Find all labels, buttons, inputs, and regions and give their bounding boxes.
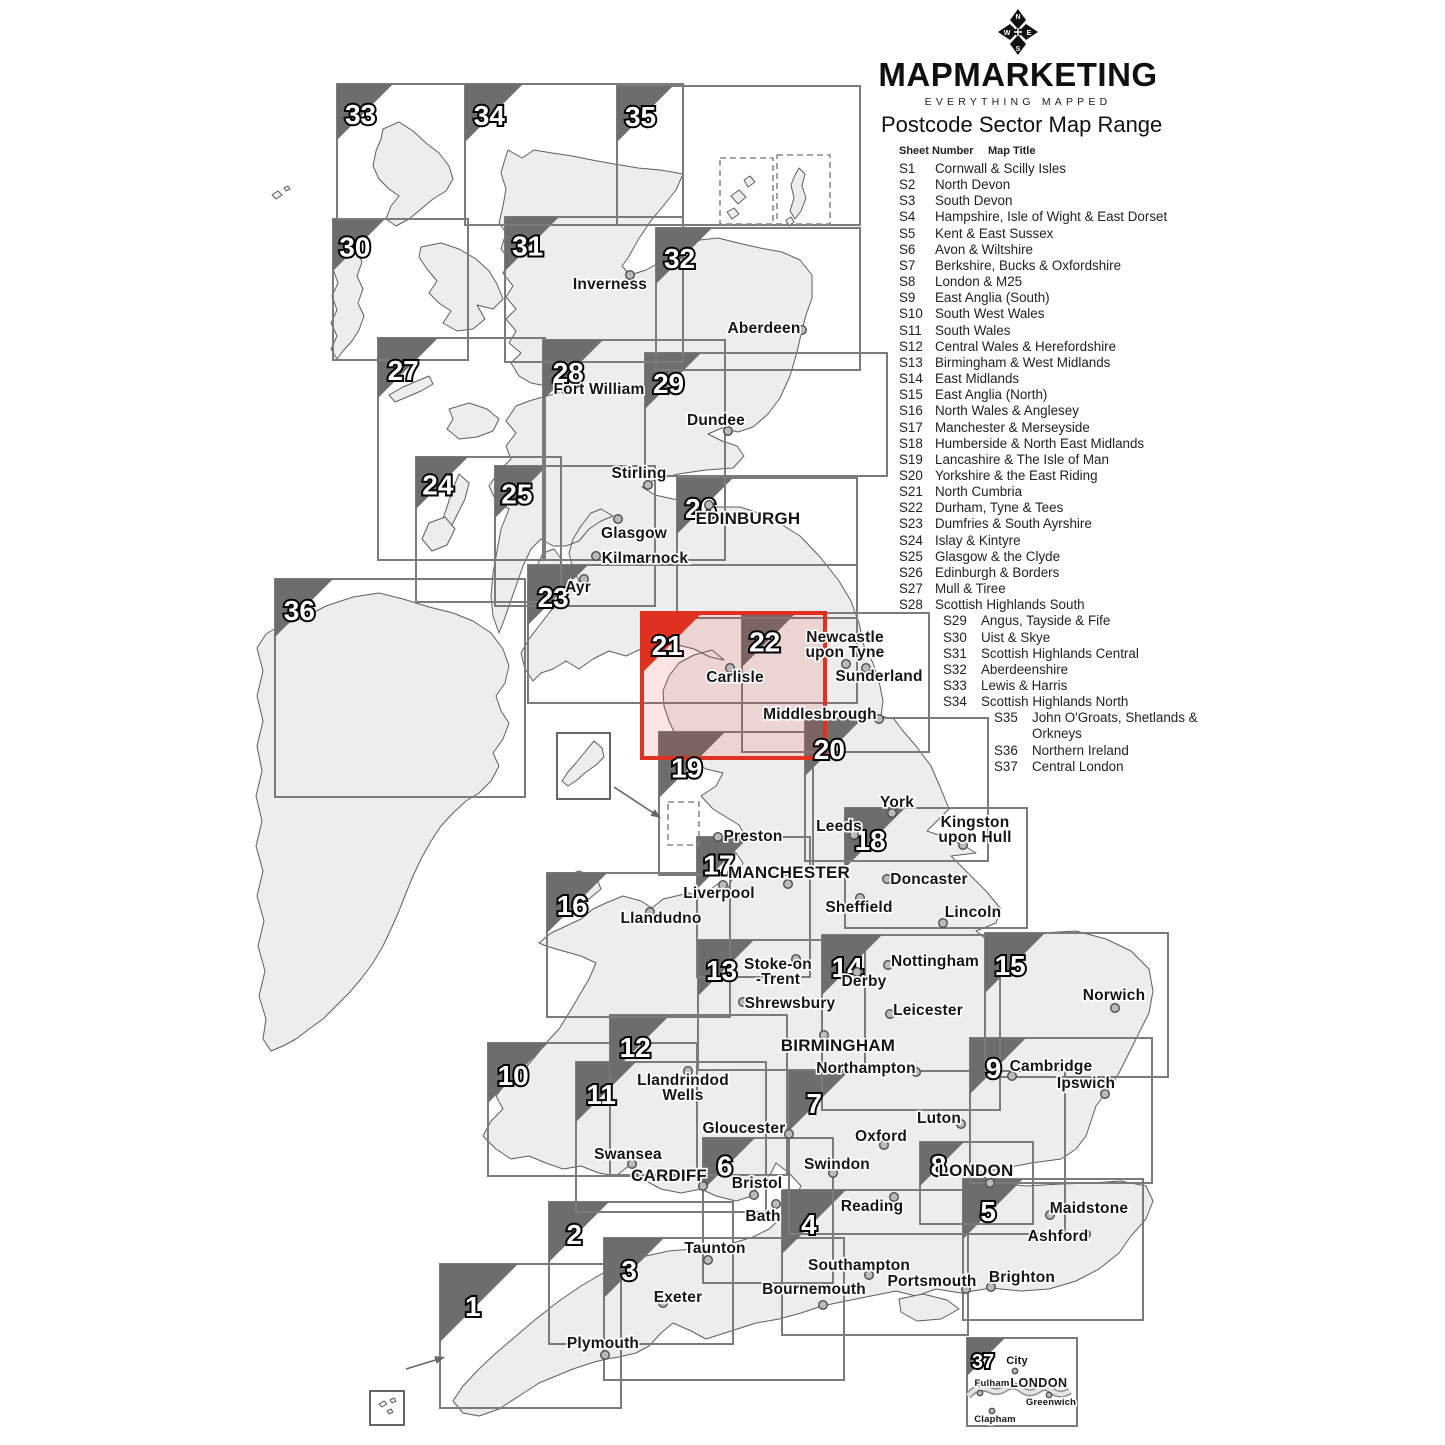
page-title: Postcode Sector Map Range bbox=[881, 112, 1162, 138]
legend-sheet-number: S17 bbox=[899, 420, 935, 436]
legend-map-title: Avon & Wiltshire bbox=[935, 242, 1204, 258]
legend-sheet-number: S36 bbox=[994, 743, 1032, 759]
sheet-number-1: 1 bbox=[465, 1291, 481, 1322]
legend-sheet-number: S3 bbox=[899, 193, 935, 209]
legend-sheet-number: S13 bbox=[899, 355, 935, 371]
sheet-number-31: 31 bbox=[512, 231, 543, 262]
city-label: Fort William bbox=[554, 381, 645, 398]
city-label: EDINBURGH bbox=[696, 509, 801, 528]
city-label: LONDON bbox=[1010, 1376, 1067, 1390]
city-label: Glasgow bbox=[601, 525, 668, 542]
sheet-number-25: 25 bbox=[501, 479, 532, 510]
city-label: York bbox=[880, 794, 914, 811]
legend-map-title: North Cumbria bbox=[935, 484, 1204, 500]
city-leicester: Leicester bbox=[886, 1002, 963, 1019]
legend-map-title: Uist & Skye bbox=[981, 630, 1204, 646]
legend-map-title: Northern Ireland bbox=[1032, 743, 1204, 759]
legend-item-s32: S32Aberdeenshire bbox=[943, 662, 1204, 678]
city-gloucester: Gloucester bbox=[703, 1120, 794, 1138]
city-label: Swansea bbox=[594, 1146, 662, 1163]
sheet-number-2: 2 bbox=[566, 1219, 582, 1250]
legend-item-s25: S25Glasgow & the Clyde bbox=[899, 549, 1204, 565]
city-doncaster: Doncaster bbox=[883, 871, 968, 888]
city-exeter: Exeter bbox=[654, 1289, 703, 1307]
city-dot bbox=[1012, 1368, 1017, 1373]
isle-of-wight bbox=[899, 1294, 959, 1321]
legend-map-title: Lewis & Harris bbox=[981, 678, 1204, 694]
legend-sheet-number: S22 bbox=[899, 500, 935, 516]
legend-map-title: Kent & East Sussex bbox=[935, 226, 1204, 242]
sheet-number-33: 33 bbox=[345, 99, 376, 130]
city-london: LONDON bbox=[1010, 1376, 1067, 1390]
legend-map-title: Central Wales & Herefordshire bbox=[935, 339, 1204, 355]
legend-map-title: Berkshire, Bucks & Oxfordshire bbox=[935, 258, 1204, 274]
legend-map-title: South Wales bbox=[935, 323, 1204, 339]
city-dot bbox=[989, 1408, 994, 1413]
legend-sheet-number: S10 bbox=[899, 306, 935, 322]
city-label: Gloucester bbox=[703, 1120, 786, 1137]
sheet-number-7: 7 bbox=[806, 1088, 822, 1119]
legend-item-s23: S23Dumfries & South Ayrshire bbox=[899, 516, 1204, 532]
city-label: Nottingham bbox=[891, 953, 979, 970]
sheet-number-4: 4 bbox=[801, 1209, 817, 1240]
isle-of-man-dashed-box bbox=[668, 802, 699, 845]
legend-sheet-number: S18 bbox=[899, 436, 935, 452]
legend-map-title: Glasgow & the Clyde bbox=[935, 549, 1204, 565]
legend-map-title: Birmingham & West Midlands bbox=[935, 355, 1204, 371]
brand-block: N E S W MAPMARKETING EVERYTHING MAPPED bbox=[878, 8, 1158, 108]
city-label: upon Tyne bbox=[805, 644, 884, 661]
legend-sheet-number: S21 bbox=[899, 484, 935, 500]
sheet-number-34: 34 bbox=[474, 100, 506, 131]
legend-map-title: Scottish Highlands Central bbox=[981, 646, 1204, 662]
city-fort-william: Fort William bbox=[554, 381, 645, 398]
legend-item-s29: S29Angus, Tayside & Fife bbox=[943, 613, 1204, 629]
legend-item-s13: S13Birmingham & West Midlands bbox=[899, 355, 1204, 371]
city-label: Maidstone bbox=[1050, 1200, 1129, 1217]
legend-item-s5: S5Kent & East Sussex bbox=[899, 226, 1204, 242]
city-kilmarnock: Kilmarnock bbox=[592, 550, 689, 567]
legend-sheet-number: S1 bbox=[899, 161, 935, 177]
legend-map-title: Scottish Highlands North bbox=[981, 694, 1204, 710]
legend-sheet-number: S16 bbox=[899, 403, 935, 419]
legend-item-s16: S16North Wales & Anglesey bbox=[899, 403, 1204, 419]
legend-map-title: North Devon bbox=[935, 177, 1204, 193]
legend-sheet-number: S31 bbox=[943, 646, 981, 662]
legend-map-title: Yorkshire & the East Riding bbox=[935, 468, 1204, 484]
city-dot bbox=[977, 1390, 982, 1395]
legend-map-title: Manchester & Merseyside bbox=[935, 420, 1204, 436]
legend-sheet-number: S11 bbox=[899, 323, 935, 339]
city-label: Southampton bbox=[808, 1257, 910, 1274]
city-label: Middlesbrough bbox=[763, 706, 877, 723]
legend-sheet-number: S32 bbox=[943, 662, 981, 678]
city-city: City bbox=[1006, 1355, 1028, 1374]
legend-item-s14: S14East Midlands bbox=[899, 371, 1204, 387]
city-label: Dundee bbox=[687, 412, 745, 429]
legend-item-s17: S17Manchester & Merseyside bbox=[899, 420, 1204, 436]
legend-item-s34: S34Scottish Highlands North bbox=[943, 694, 1204, 710]
city-label: Leicester bbox=[893, 1002, 963, 1019]
compass-e: E bbox=[1027, 30, 1032, 37]
st-kilda-islets bbox=[272, 186, 290, 199]
city-label: Swindon bbox=[804, 1156, 870, 1173]
sheet-number-30: 30 bbox=[339, 232, 370, 263]
sheet-number-16: 16 bbox=[557, 890, 588, 921]
city-llandudno: Llandudno bbox=[620, 908, 701, 927]
isle-of-man-arrow bbox=[614, 787, 658, 816]
city-dot bbox=[785, 1130, 794, 1139]
legend-item-s2: S2North Devon bbox=[899, 177, 1204, 193]
legend-sheet-number: S19 bbox=[899, 452, 935, 468]
city-label: Clapham bbox=[974, 1414, 1016, 1425]
legend-item-s12: S12Central Wales & Herefordshire bbox=[899, 339, 1204, 355]
legend-map-title: Hampshire, Isle of Wight & East Dorset bbox=[935, 209, 1204, 225]
legend-sheet-number: S33 bbox=[943, 678, 981, 694]
city-label: Ayr bbox=[565, 579, 591, 596]
sheet-number-37: 37 bbox=[972, 1351, 994, 1373]
city-dot bbox=[772, 1200, 781, 1209]
city-label: Bath bbox=[745, 1208, 780, 1225]
city-label: Bournemouth bbox=[762, 1281, 866, 1298]
legend-sheet-number: S9 bbox=[899, 290, 935, 306]
city-luton: Luton bbox=[917, 1110, 965, 1128]
legend-item-s35: S35John O'Groats, Shetlands & Orkneys bbox=[994, 710, 1204, 742]
city-shrewsbury: Shrewsbury bbox=[739, 995, 836, 1012]
city-label: Liverpool bbox=[683, 885, 755, 902]
legend-map-title: East Midlands bbox=[935, 371, 1204, 387]
sheet-number-10: 10 bbox=[498, 1060, 529, 1091]
city-bath: Bath bbox=[745, 1200, 780, 1225]
sheet-number-11: 11 bbox=[586, 1079, 616, 1110]
legend-map-title: Islay & Kintyre bbox=[935, 533, 1204, 549]
legend-item-s37: S37Central London bbox=[994, 759, 1204, 775]
sheet-number-5: 5 bbox=[980, 1196, 996, 1227]
city-edinburgh: EDINBURGH bbox=[696, 501, 801, 528]
legend-map-title: London & M25 bbox=[935, 274, 1204, 290]
legend-sheet-number: S26 bbox=[899, 565, 935, 581]
legend-item-s9: S9East Anglia (South) bbox=[899, 290, 1204, 306]
city-preston: Preston bbox=[714, 828, 783, 845]
legend-item-s21: S21North Cumbria bbox=[899, 484, 1204, 500]
city-label: Portsmouth bbox=[888, 1273, 977, 1290]
city-dot bbox=[592, 552, 601, 561]
city-clapham: Clapham bbox=[974, 1408, 1016, 1425]
sheet-number-35: 35 bbox=[625, 101, 656, 132]
city-label: Llandudno bbox=[620, 910, 701, 927]
legend-sheet-number: S27 bbox=[899, 581, 935, 597]
legend-sheet-number: S15 bbox=[899, 387, 935, 403]
legend-item-s26: S26Edinburgh & Borders bbox=[899, 565, 1204, 581]
lewis-harris-island bbox=[373, 122, 453, 226]
legend-sheet-number: S2 bbox=[899, 177, 935, 193]
legend-list: S1Cornwall & Scilly IslesS2North DevonS3… bbox=[899, 161, 1204, 775]
legend-sheet-number: S34 bbox=[943, 694, 981, 710]
legend-item-s19: S19Lancashire & The Isle of Man bbox=[899, 452, 1204, 468]
sheet-number-36: 36 bbox=[284, 595, 315, 626]
sheet-number-6: 6 bbox=[717, 1151, 733, 1182]
sheet-number-21: 21 bbox=[652, 630, 683, 661]
legend-map-title: Angus, Tayside & Fife bbox=[981, 613, 1204, 629]
sheet-number-22: 22 bbox=[749, 627, 780, 658]
city-label: Oxford bbox=[855, 1128, 907, 1145]
city-label: upon Hull bbox=[938, 829, 1011, 846]
legend-map-title: Humberside & North East Midlands bbox=[935, 436, 1204, 452]
skye-island bbox=[419, 243, 503, 331]
uk-sheet-coverage-map: 1234567891011121314151617181920212223242… bbox=[0, 0, 1445, 1445]
legend-map-title: North Wales & Anglesey bbox=[935, 403, 1204, 419]
city-label: Bristol bbox=[732, 1175, 783, 1192]
city-dot bbox=[705, 501, 714, 510]
city-label: Ipswich bbox=[1057, 1075, 1115, 1092]
legend-sheet-number: S24 bbox=[899, 533, 935, 549]
legend-sheet-number: S12 bbox=[899, 339, 935, 355]
legend-map-title: East Anglia (South) bbox=[935, 290, 1204, 306]
legend-item-s6: S6Avon & Wiltshire bbox=[899, 242, 1204, 258]
city-label: Kilmarnock bbox=[602, 550, 689, 567]
legend-map-title: Cornwall & Scilly Isles bbox=[935, 161, 1204, 177]
legend-item-s1: S1Cornwall & Scilly Isles bbox=[899, 161, 1204, 177]
legend-item-s31: S31Scottish Highlands Central bbox=[943, 646, 1204, 662]
legend-item-s15: S15East Anglia (North) bbox=[899, 387, 1204, 403]
city-label: LONDON bbox=[939, 1161, 1014, 1180]
city-aberdeen: Aberdeen bbox=[727, 320, 806, 337]
legend-map-title: John O'Groats, Shetlands & Orkneys bbox=[1032, 710, 1204, 742]
sheet-number-32: 32 bbox=[664, 243, 695, 274]
city-label: Wells bbox=[662, 1087, 703, 1104]
sheet-number-29: 29 bbox=[653, 368, 684, 399]
legend-sheet-number: S37 bbox=[994, 759, 1032, 775]
legend-sheet-number: S28 bbox=[899, 597, 935, 613]
legend-item-s11: S11South Wales bbox=[899, 323, 1204, 339]
legend-sheet-number: S14 bbox=[899, 371, 935, 387]
sheet-number-15: 15 bbox=[995, 950, 1026, 981]
legend-col-map-title: Map Title bbox=[988, 145, 1035, 157]
city-middlesbrough: Middlesbrough bbox=[763, 706, 883, 723]
postcode-map-range-page: { "brand": {"name": "MAPMARKETING", "tag… bbox=[0, 0, 1445, 1445]
legend-item-s30: S30Uist & Skye bbox=[943, 630, 1204, 646]
city-label: Preston bbox=[723, 828, 782, 845]
orkney-islets bbox=[727, 176, 755, 219]
legend-map-title: Mull & Tiree bbox=[935, 581, 1204, 597]
legend-item-s33: S33Lewis & Harris bbox=[943, 678, 1204, 694]
legend-map-title: Durham, Tyne & Tees bbox=[935, 500, 1204, 516]
compass-s: S bbox=[1016, 46, 1021, 53]
legend-item-s10: S10South West Wales bbox=[899, 306, 1204, 322]
city-label: MANCHESTER bbox=[728, 863, 850, 882]
city-label: Greenwich bbox=[1026, 1397, 1076, 1408]
city-label: Brighton bbox=[989, 1269, 1055, 1286]
city-label: Cambridge bbox=[1010, 1058, 1093, 1075]
city-label: CARDIFF bbox=[631, 1166, 707, 1185]
city-label: Northampton bbox=[816, 1060, 916, 1077]
city-label: Luton bbox=[917, 1110, 961, 1127]
city-label: Shrewsbury bbox=[745, 995, 836, 1012]
legend-map-title: Aberdeenshire bbox=[981, 662, 1204, 678]
city-label: Fulham bbox=[975, 1378, 1010, 1389]
sheet-number-19: 19 bbox=[671, 752, 702, 783]
legend-item-s4: S4Hampshire, Isle of Wight & East Dorset bbox=[899, 209, 1204, 225]
legend-sheet-number: S8 bbox=[899, 274, 935, 290]
ireland-coastline bbox=[256, 593, 509, 1051]
city-kingston: Kingstonupon Hull bbox=[938, 814, 1011, 849]
city-dot bbox=[819, 1301, 828, 1310]
legend-map-title: East Anglia (North) bbox=[935, 387, 1204, 403]
scilly-inset-box bbox=[370, 1391, 404, 1425]
sheet-number-3: 3 bbox=[621, 1255, 637, 1286]
legend-item-s7: S7Berkshire, Bucks & Oxfordshire bbox=[899, 258, 1204, 274]
legend-map-title: Scottish Highlands South bbox=[935, 597, 1204, 613]
legend-item-s3: S3South Devon bbox=[899, 193, 1204, 209]
city-label: -Trent bbox=[756, 971, 800, 988]
legend-map-title: Lancashire & The Isle of Man bbox=[935, 452, 1204, 468]
legend-col-sheet-number: Sheet Number bbox=[899, 145, 974, 157]
sheet-number-20: 20 bbox=[814, 734, 845, 765]
compass-n: N bbox=[1015, 14, 1020, 21]
city-maidstone: Maidstone bbox=[1046, 1200, 1129, 1219]
shetland-islets bbox=[786, 168, 806, 226]
legend-item-s22: S22Durham, Tyne & Tees bbox=[899, 500, 1204, 516]
sheet-number-27: 27 bbox=[388, 355, 419, 386]
city-label: Leeds bbox=[816, 818, 862, 835]
legend-map-title: South West Wales bbox=[935, 306, 1204, 322]
city-label: Derby bbox=[842, 973, 887, 990]
city-ashford: Ashford bbox=[1028, 1228, 1091, 1245]
legend-map-title: Edinburgh & Borders bbox=[935, 565, 1204, 581]
city-dot bbox=[614, 515, 623, 524]
city-nottingham: Nottingham bbox=[884, 953, 979, 970]
legend-map-title: South Devon bbox=[935, 193, 1204, 209]
legend-sheet-number: S35 bbox=[994, 710, 1032, 742]
legend-sheet-number: S23 bbox=[899, 516, 935, 532]
legend-sheet-number: S30 bbox=[943, 630, 981, 646]
legend-sheet-number: S20 bbox=[899, 468, 935, 484]
city-label: Inverness bbox=[573, 276, 647, 293]
compass-logo-icon: N E S W bbox=[997, 8, 1039, 56]
legend-item-s27: S27Mull & Tiree bbox=[899, 581, 1204, 597]
city-label: City bbox=[1006, 1355, 1028, 1367]
city-label: Stirling bbox=[612, 465, 667, 482]
city-label: Lincoln bbox=[945, 904, 1002, 921]
mull-island bbox=[447, 403, 499, 439]
city-label: BIRMINGHAM bbox=[781, 1036, 895, 1055]
legend-item-s20: S20Yorkshire & the East Riding bbox=[899, 468, 1204, 484]
legend-item-s18: S18Humberside & North East Midlands bbox=[899, 436, 1204, 452]
legend-sheet-number: S29 bbox=[943, 613, 981, 629]
brand-name: MAPMARKETING bbox=[878, 58, 1158, 93]
city-label: Exeter bbox=[654, 1289, 703, 1306]
sheet-number-9: 9 bbox=[986, 1053, 1002, 1084]
city-label: Norwich bbox=[1083, 987, 1146, 1004]
legend-sheet-number: S6 bbox=[899, 242, 935, 258]
city-label: Taunton bbox=[684, 1240, 745, 1257]
sheet-number-24: 24 bbox=[422, 470, 454, 501]
city-label: Reading bbox=[841, 1198, 904, 1215]
legend-sheet-number: S25 bbox=[899, 549, 935, 565]
city-label: Ashford bbox=[1028, 1228, 1089, 1245]
legend-item-s8: S8London & M25 bbox=[899, 274, 1204, 290]
sheet-number-12: 12 bbox=[620, 1032, 651, 1063]
legend-sheet-number: S7 bbox=[899, 258, 935, 274]
legend-item-s24: S24Islay & Kintyre bbox=[899, 533, 1204, 549]
sheet-number-13: 13 bbox=[706, 955, 737, 986]
city-label: Plymouth bbox=[567, 1335, 639, 1352]
legend-map-title: Central London bbox=[1032, 759, 1204, 775]
city-dot bbox=[1111, 1004, 1120, 1013]
city-northampton: Northampton bbox=[816, 1060, 920, 1077]
legend-sheet-number: S5 bbox=[899, 226, 935, 242]
compass-w: W bbox=[1004, 30, 1011, 37]
city-label: Doncaster bbox=[890, 871, 968, 888]
legend-item-s28: S28Scottish Highlands South bbox=[899, 597, 1204, 613]
city-label: Aberdeen bbox=[727, 320, 800, 337]
city-label: Sheffield bbox=[825, 899, 892, 916]
city-label: Carlisle bbox=[706, 669, 764, 686]
city-dot bbox=[714, 833, 723, 842]
brand-tagline: EVERYTHING MAPPED bbox=[878, 96, 1158, 108]
legend-map-title: Dumfries & South Ayrshire bbox=[935, 516, 1204, 532]
legend-sheet-number: S4 bbox=[899, 209, 935, 225]
legend-item-s36: S36Northern Ireland bbox=[994, 743, 1204, 759]
